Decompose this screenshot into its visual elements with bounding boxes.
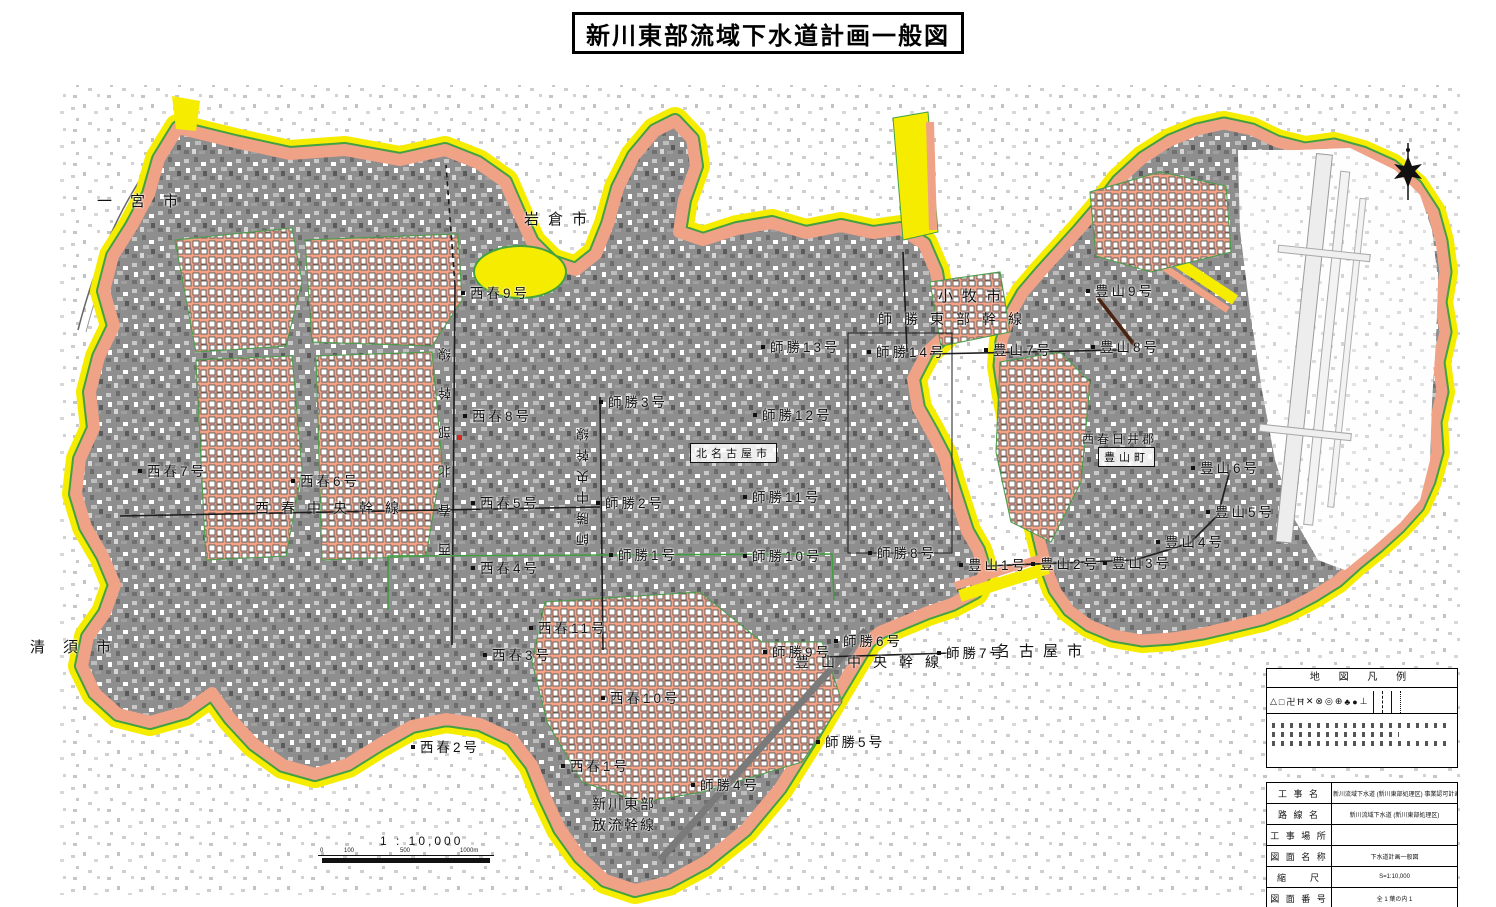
trunk-label-shinkawa-tobu: 新川東部 <box>592 794 656 814</box>
city-label-komaki: 小牧市 <box>938 285 1010 306</box>
point-marker <box>691 783 695 787</box>
map-point-label: 豊山9号 <box>1095 280 1155 300</box>
legend-line-dotted <box>1400 691 1401 713</box>
legend-symbol: ♣ <box>1344 697 1350 707</box>
point-marker <box>291 479 295 483</box>
title-block-row: 工 事 場 所 <box>1267 825 1458 846</box>
point-marker <box>743 495 747 499</box>
legend-symbol: △ <box>1270 696 1277 707</box>
legend-line-dashed <box>1382 691 1383 713</box>
scale-tick-label: 0 <box>320 848 323 854</box>
scale-bar <box>322 858 490 863</box>
map-point-label: 西春1号 <box>570 755 630 775</box>
point-marker <box>763 650 767 654</box>
map-point-label: 師勝4号 <box>700 774 760 794</box>
scale-text: 1 : 10,000 <box>380 834 463 848</box>
point-marker <box>561 764 565 768</box>
title-block-label: 図 面 番 号 <box>1267 888 1332 907</box>
title-block-value: S=1:10,000 <box>1332 867 1458 888</box>
map-point-label: 西春7号 <box>147 460 207 480</box>
point-marker <box>1091 345 1095 349</box>
map-point-label: 師勝14号 <box>876 341 947 361</box>
point-marker <box>463 414 467 418</box>
map-point-label: 師勝12号 <box>762 404 833 424</box>
map-point-label: 師勝8号 <box>877 542 937 562</box>
map-point-label: 師勝11号 <box>752 486 822 506</box>
map-point-label: 西春2号 <box>420 736 480 756</box>
scale-block: 1 : 10,000 01005001000m <box>300 834 520 874</box>
legend-line-solid <box>1373 691 1374 713</box>
legend-line-solid2 <box>1391 691 1392 713</box>
legend-symbol: ⊥ <box>1360 696 1368 707</box>
map-point-label: 西春9号 <box>470 282 530 302</box>
title-block-value: 新川流域下水道 (新川東部処理区) 事業認可計画 <box>1332 783 1458 804</box>
map-point-label: 豊山6号 <box>1200 457 1260 477</box>
map-point-label: 豊山8号 <box>1100 336 1160 356</box>
city-label-kiyosu: 清須市 <box>30 636 129 657</box>
map-point-label: 豊山5号 <box>1215 501 1275 521</box>
legend-symbol: 卍 <box>1286 695 1295 708</box>
title-block-label: 工 事 場 所 <box>1267 825 1332 846</box>
city-label-nagoya: 名古屋市 <box>995 640 1091 661</box>
map-point-label: 師勝3号 <box>608 391 668 411</box>
point-marker <box>834 639 838 643</box>
legend-symbol: □ <box>1279 697 1284 707</box>
legend-symbol: ◎ <box>1325 696 1333 707</box>
city-label-iwakura: 岩倉市 <box>524 208 596 229</box>
scale-tick-label: 100 <box>344 848 354 854</box>
title-block-label: 工 事 名 <box>1267 783 1332 804</box>
point-marker <box>868 551 872 555</box>
title-block-label: 図 面 名 称 <box>1267 846 1332 867</box>
point-marker <box>138 469 142 473</box>
legend-symbol: ⊕ <box>1335 696 1343 707</box>
drawing-title-box: 新川東部流域下水道計画一般図 <box>572 12 964 54</box>
title-block-row: 工 事 名新川流域下水道 (新川東部処理区) 事業認可計画 <box>1267 783 1458 804</box>
point-marker <box>461 291 465 295</box>
point-marker <box>761 345 765 349</box>
point-marker <box>959 563 963 567</box>
point-marker <box>599 400 603 404</box>
map-point-label: 師勝7号 <box>946 642 1006 662</box>
title-block-label: 路 線 名 <box>1267 804 1332 825</box>
point-marker <box>411 745 415 749</box>
legend-symbols-row: △□卍Ħ✕⊗◎⊕♣●⊥ <box>1267 688 1457 714</box>
point-marker <box>1103 561 1107 565</box>
title-block-value: 全 1 葉の内 1 <box>1332 888 1458 907</box>
point-marker <box>471 566 475 570</box>
point-marker <box>471 501 475 505</box>
map-point-label: 師勝1号 <box>618 544 678 564</box>
city-label-ichinomiya: 一宮市 <box>97 190 196 211</box>
legend-symbol: ● <box>1352 697 1357 707</box>
point-marker <box>816 740 820 744</box>
point-marker <box>609 553 613 557</box>
title-block-row: 図 面 番 号全 1 葉の内 1 <box>1267 888 1458 907</box>
title-block-row: 路 線 名新川流域下水道 (新川東部処理区) <box>1267 804 1458 825</box>
map-point-label: 師勝10号 <box>752 545 823 565</box>
point-marker <box>1206 510 1210 514</box>
point-marker <box>596 501 600 505</box>
trunk-label-shikatsu-chuo: 師勝中央幹線 <box>574 420 593 546</box>
point-marker <box>1191 466 1195 470</box>
map-point-label: 西春11号 <box>538 617 608 637</box>
trunk-label-nishiharu-hokubu: 西春北部幹線 <box>436 322 455 556</box>
map-legend: 地 図 凡 例 △□卍Ħ✕⊗◎⊕♣●⊥ <box>1266 668 1458 768</box>
map-point-label: 豊山2号 <box>1040 553 1100 573</box>
title-block-rows: 工 事 名新川流域下水道 (新川東部処理区) 事業認可計画路 線 名新川流域下水… <box>1267 783 1458 907</box>
title-block-table: 工 事 名新川流域下水道 (新川東部処理区) 事業認可計画路 線 名新川流域下水… <box>1266 782 1458 907</box>
title-block-label: 縮 尺 <box>1267 867 1332 888</box>
map-point-label: 西春3号 <box>492 644 552 664</box>
legend-symbol: Ħ <box>1297 697 1304 707</box>
map-point-label: 豊山7号 <box>993 339 1053 359</box>
legend-fineprint-row <box>1272 732 1399 737</box>
trunk-label-nishiharu-chuo: 西春中央幹線 <box>255 498 411 518</box>
legend-symbol: ⊗ <box>1315 696 1323 707</box>
map-point-label: 豊山4号 <box>1165 531 1225 551</box>
map-point-label: 師勝5号 <box>825 731 885 751</box>
trunk-label-horyu-kansen: 放流幹線 <box>592 815 656 835</box>
map-point-label: 西春4号 <box>480 557 540 577</box>
map-point-label: 師勝2号 <box>605 492 665 512</box>
map-point-label: 師勝6号 <box>843 630 903 650</box>
title-block-value: 下水道計画一般図 <box>1332 846 1458 867</box>
map-point-label: 西春6号 <box>300 470 360 490</box>
district-label-nishikasugai: 西春日井郡 <box>1082 430 1157 447</box>
title-block-row: 図 面 名 称下水道計画一般図 <box>1267 846 1458 867</box>
point-marker <box>1156 540 1160 544</box>
title-block-row: 縮 尺S=1:10,000 <box>1267 867 1458 888</box>
point-marker <box>867 350 871 354</box>
point-marker <box>601 696 605 700</box>
map-point-label: 西春8号 <box>472 405 532 425</box>
map-point-label: 師勝9号 <box>772 641 832 661</box>
page-title: 新川東部流域下水道計画一般図 <box>586 16 950 51</box>
map-labels-layer: 一宮市岩倉市小牧市清須市名古屋市西春日井郡豊山町北名古屋市師勝東部幹線西春中央幹… <box>0 0 1496 907</box>
point-marker <box>529 626 533 630</box>
point-marker <box>937 651 941 655</box>
legend-symbol: ✕ <box>1306 696 1314 707</box>
trunk-label-shikatsu-tobu: 師勝東部幹線 <box>878 309 1034 329</box>
map-point-label: 師勝13号 <box>770 336 841 356</box>
town-label-toyoyama: 豊山町 <box>1098 447 1155 467</box>
legend-fineprint-row <box>1272 741 1452 746</box>
drawing-sheet: 一宮市岩倉市小牧市清須市名古屋市西春日井郡豊山町北名古屋市師勝東部幹線西春中央幹… <box>0 0 1496 907</box>
point-marker <box>753 413 757 417</box>
city-label-kitanagoya: 北名古屋市 <box>690 443 777 463</box>
map-point-label: 豊山3号 <box>1112 552 1172 572</box>
map-point-label: 西春10号 <box>610 687 681 707</box>
map-point-label: 西春5号 <box>480 492 540 512</box>
point-marker <box>984 348 988 352</box>
scale-tick-label: 500 <box>400 848 410 854</box>
map-point-label: 豊山1号 <box>968 554 1028 574</box>
legend-title: 地 図 凡 例 <box>1267 669 1457 688</box>
title-block-value <box>1332 825 1458 846</box>
point-marker <box>743 554 747 558</box>
point-marker <box>1031 562 1035 566</box>
legend-fineprint-row <box>1272 723 1452 728</box>
legend-fineprint <box>1267 714 1457 755</box>
scale-tick-label: 1000m <box>460 848 478 854</box>
point-marker <box>1086 289 1090 293</box>
title-block-value: 新川流域下水道 (新川東部処理区) <box>1332 804 1458 825</box>
point-marker <box>483 653 487 657</box>
